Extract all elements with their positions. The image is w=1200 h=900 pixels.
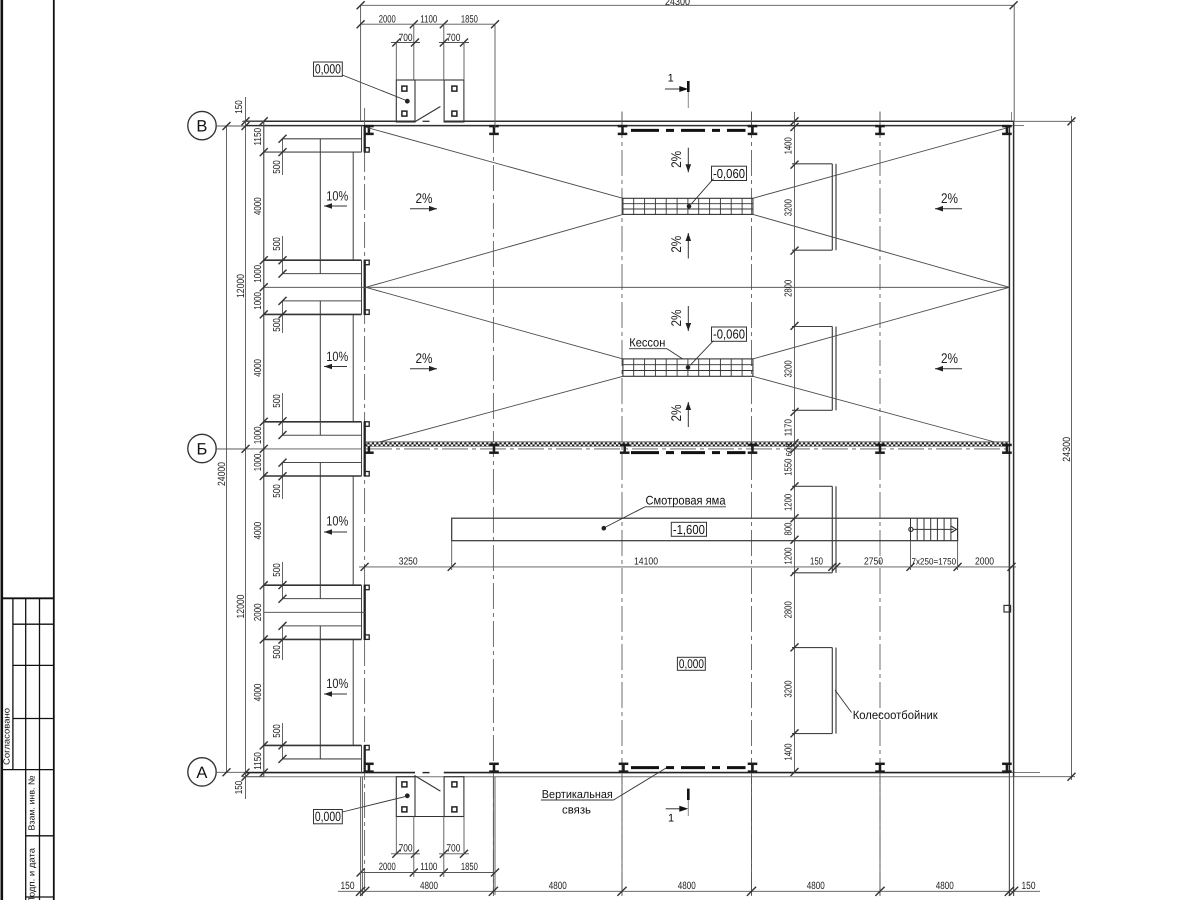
svg-text:1000: 1000 (253, 426, 264, 444)
svg-text:2%: 2% (668, 151, 684, 168)
svg-text:10%: 10% (326, 189, 348, 204)
svg-text:3200: 3200 (783, 680, 794, 697)
svg-text:4000: 4000 (253, 197, 264, 215)
svg-text:-0,060: -0,060 (713, 327, 745, 342)
svg-text:500: 500 (272, 394, 283, 408)
svg-text:2%: 2% (668, 236, 684, 253)
svg-text:1000: 1000 (253, 265, 264, 283)
svg-text:500: 500 (272, 645, 283, 659)
svg-text:150: 150 (341, 880, 355, 892)
svg-text:1400: 1400 (783, 137, 794, 154)
svg-text:2%: 2% (416, 350, 433, 366)
svg-text:150: 150 (234, 780, 245, 794)
svg-text:2000: 2000 (379, 14, 396, 26)
svg-text:2%: 2% (941, 350, 958, 366)
svg-text:Колесоотбойник: Колесоотбойник (853, 708, 939, 722)
svg-text:1000: 1000 (253, 292, 264, 310)
svg-text:700: 700 (446, 843, 460, 855)
svg-text:12000: 12000 (235, 274, 247, 298)
svg-text:800: 800 (783, 522, 794, 535)
svg-text:4800: 4800 (678, 880, 696, 892)
svg-text:700: 700 (446, 32, 460, 44)
svg-text:Кессон: Кессон (629, 335, 665, 349)
svg-text:600: 600 (784, 443, 793, 456)
svg-text:500: 500 (272, 484, 283, 498)
svg-text:4000: 4000 (253, 359, 264, 377)
svg-text:2%: 2% (416, 190, 433, 206)
svg-text:-0,060: -0,060 (713, 166, 745, 181)
svg-text:700: 700 (399, 843, 413, 855)
svg-text:500: 500 (272, 318, 283, 332)
svg-text:Подп. и дата: Подп. и дата (27, 848, 37, 900)
svg-text:1400: 1400 (783, 743, 794, 760)
svg-text:2000: 2000 (253, 603, 264, 621)
svg-text:500: 500 (272, 724, 283, 738)
svg-text:1100: 1100 (420, 861, 437, 873)
svg-text:150: 150 (234, 100, 245, 114)
svg-text:10%: 10% (326, 349, 348, 364)
svg-text:1100: 1100 (420, 14, 437, 26)
svg-text:10%: 10% (326, 676, 348, 691)
svg-text:2750: 2750 (864, 556, 883, 567)
svg-text:4800: 4800 (807, 880, 825, 892)
svg-text:2%: 2% (668, 405, 684, 422)
svg-text:24000: 24000 (216, 462, 228, 486)
svg-text:1850: 1850 (461, 14, 478, 26)
svg-text:4800: 4800 (936, 880, 954, 892)
svg-text:связь: связь (562, 805, 591, 817)
svg-text:0,000: 0,000 (315, 61, 341, 76)
svg-text:1: 1 (668, 73, 674, 85)
svg-text:В: В (196, 118, 207, 136)
svg-text:1200: 1200 (783, 494, 794, 511)
svg-text:7х250=1750: 7х250=1750 (912, 556, 957, 566)
svg-text:2%: 2% (668, 310, 684, 327)
svg-text:-1,600: -1,600 (673, 522, 705, 537)
svg-text:1170: 1170 (783, 419, 794, 436)
svg-text:0,000: 0,000 (679, 657, 704, 671)
svg-text:Взам. инв. №: Взам. инв. № (27, 776, 37, 831)
svg-text:2800: 2800 (783, 601, 794, 618)
svg-text:4000: 4000 (253, 522, 264, 540)
svg-text:150: 150 (810, 556, 823, 567)
svg-text:1150: 1150 (253, 128, 264, 146)
svg-text:Согласовано: Согласовано (2, 708, 12, 765)
svg-text:500: 500 (272, 237, 283, 251)
svg-text:150: 150 (1022, 880, 1036, 892)
svg-text:1: 1 (668, 813, 674, 825)
svg-text:14100: 14100 (634, 556, 658, 567)
svg-text:2%: 2% (941, 190, 958, 206)
svg-text:1850: 1850 (461, 861, 478, 873)
svg-text:12000: 12000 (235, 594, 247, 618)
svg-text:1550: 1550 (783, 458, 794, 475)
svg-text:Смотровая яма: Смотровая яма (646, 494, 726, 508)
svg-text:4800: 4800 (420, 880, 438, 892)
svg-text:500: 500 (272, 160, 283, 174)
svg-text:0,000: 0,000 (315, 809, 341, 824)
svg-text:1000: 1000 (253, 453, 264, 471)
svg-text:4000: 4000 (253, 683, 264, 701)
svg-text:500: 500 (272, 563, 283, 577)
svg-text:4800: 4800 (549, 880, 567, 892)
svg-text:1150: 1150 (253, 752, 264, 770)
svg-text:24300: 24300 (665, 0, 690, 8)
svg-text:2000: 2000 (975, 556, 994, 567)
svg-text:Вертикальная: Вертикальная (542, 789, 613, 801)
svg-text:10%: 10% (326, 514, 348, 529)
svg-text:3200: 3200 (783, 360, 794, 377)
svg-text:3200: 3200 (783, 199, 794, 216)
svg-text:А: А (196, 764, 207, 782)
svg-text:3250: 3250 (399, 556, 418, 567)
svg-text:700: 700 (399, 32, 413, 44)
svg-text:2000: 2000 (379, 861, 396, 873)
svg-text:1200: 1200 (783, 547, 794, 564)
svg-text:Б: Б (196, 441, 207, 459)
svg-text:24300: 24300 (1061, 437, 1073, 462)
svg-text:2800: 2800 (783, 279, 794, 296)
